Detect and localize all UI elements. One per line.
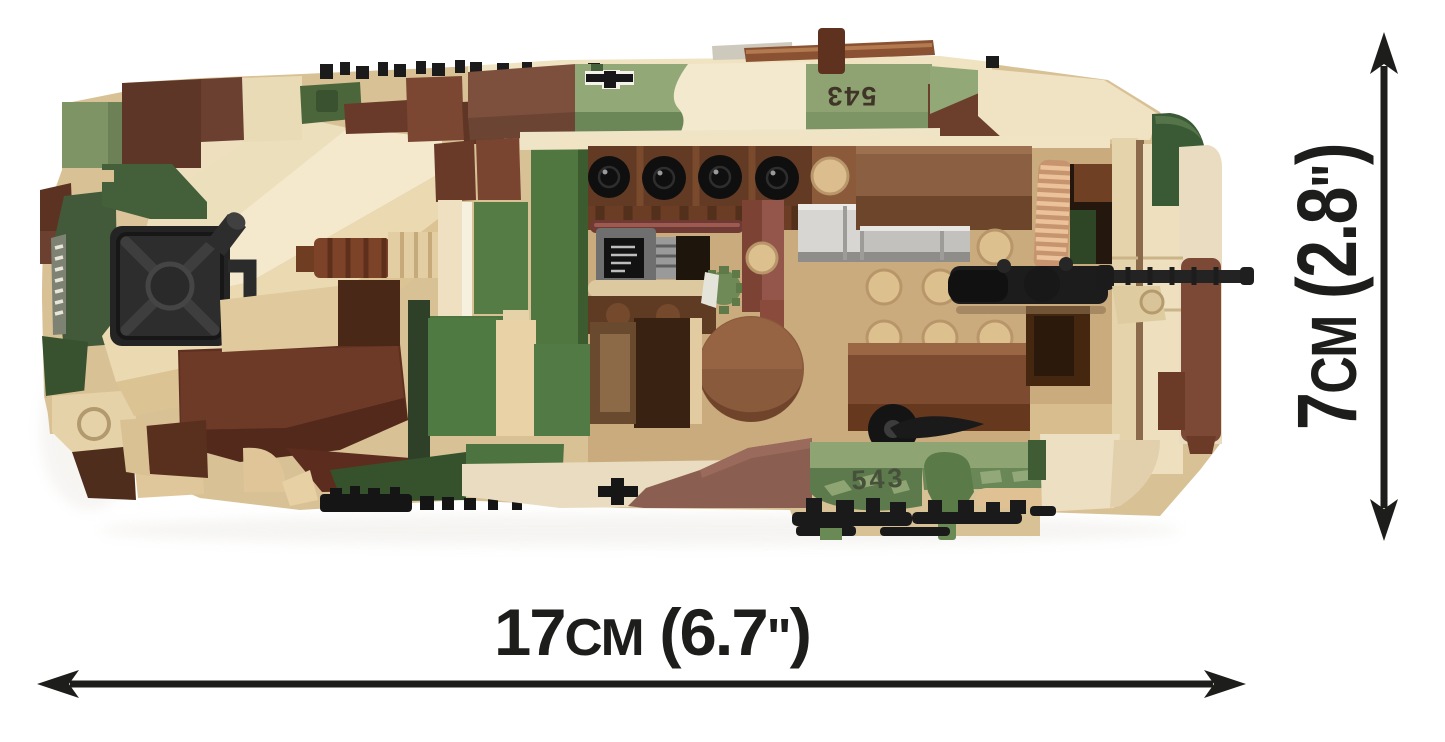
svg-text:543: 543 [851,463,907,496]
svg-text:17CM (6.7"): 17CM (6.7") [494,595,810,669]
svg-text:543: 543 [825,81,876,111]
